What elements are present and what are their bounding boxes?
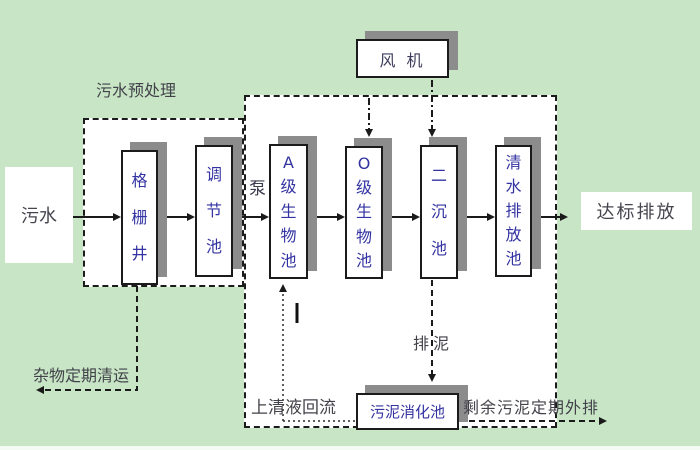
grid-well-box: 格栅井 xyxy=(121,150,158,285)
secondary-clarifier-label: 二沉池 xyxy=(422,147,456,277)
fan-box: 风 机 xyxy=(356,39,449,78)
o-bio-tank-label: O级生物池 xyxy=(347,148,381,277)
debris-removal-label: 杂物定期清运 xyxy=(33,368,129,384)
clean-water-tank-label: 清水排放池 xyxy=(497,147,530,275)
influent-label: 污水 xyxy=(21,202,57,228)
secondary-clarifier-box: 二沉池 xyxy=(420,145,458,279)
a-bio-tank-label: A级生物池 xyxy=(271,146,306,277)
clean-water-tank-box: 清水排放池 xyxy=(495,145,532,277)
fan-label: 风 机 xyxy=(379,47,425,71)
grid-well-label: 格栅井 xyxy=(123,152,156,283)
sludge-digester-box: 污泥消化池 xyxy=(356,393,459,430)
o-bio-tank-box: O级生物池 xyxy=(345,146,383,279)
regulating-tank-box: 调节池 xyxy=(195,145,233,277)
compliant-discharge-label: 达标排放 xyxy=(597,198,677,224)
a-bio-tank-box: A级生物池 xyxy=(269,144,308,279)
pretreatment-zone-label: 污水预处理 xyxy=(96,83,176,99)
sludge-digester-label: 污泥消化池 xyxy=(370,401,445,422)
influent-box: 污水 xyxy=(5,167,73,263)
wastewater-process-diagram: 污水 达标排放 格栅井 调节池 A级生物池 O级生物池 二沉池 清水排放池 风 … xyxy=(0,0,700,450)
regulating-tank-label: 调节池 xyxy=(197,147,231,275)
supernatant-reflux-label: 上清液回流 xyxy=(251,400,336,417)
excess-sludge-label: 剩余污泥定期外排 xyxy=(463,400,599,416)
pump-label: 泵 xyxy=(249,181,266,198)
compliant-discharge-box: 达标排放 xyxy=(581,192,692,230)
bottom-edge-strip xyxy=(0,446,700,450)
sludge-discharge-label: 排泥 xyxy=(413,336,453,352)
